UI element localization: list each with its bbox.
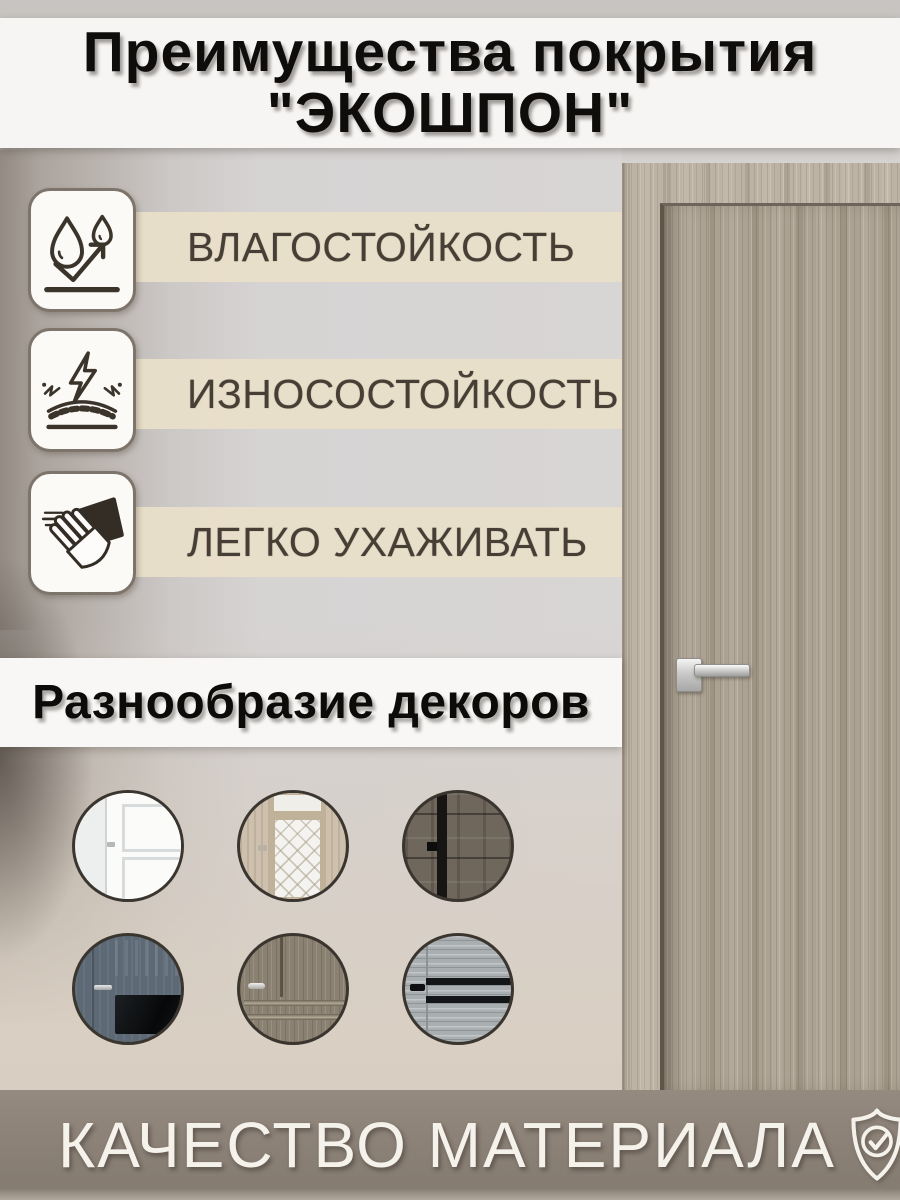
feature-band-care: ЛЕГКО УХАЖИВАТЬ (130, 507, 622, 577)
water-drops-icon (38, 198, 126, 302)
mini-door-handle-icon (427, 842, 437, 851)
decor-white-classic-door (72, 790, 184, 902)
feature-icon-tile (28, 328, 136, 452)
promo-image: Преимущества покрытия "ЭКОШПОН" ВЛАГОСТО… (0, 0, 900, 1200)
title-banner: Преимущества покрытия "ЭКОШПОН" (0, 18, 900, 148)
wipe-clean-icon (38, 481, 126, 585)
mini-door-handle-icon (248, 983, 265, 989)
floor-strip (0, 1188, 900, 1200)
impact-resistance-icon (38, 338, 126, 442)
feature-band-wear: ИЗНОСОСТОЙКОСТЬ (130, 359, 622, 429)
feature-label: ВЛАГОСТОЙКОСТЬ (187, 224, 575, 271)
door-handle-icon (694, 664, 750, 677)
feature-band-moisture: ВЛАГОСТОЙКОСТЬ (130, 212, 622, 282)
decor-dark-rustic-wood-door (402, 790, 514, 902)
feature-icon-tile (28, 471, 136, 595)
footer-band: КАЧЕСТВО МАТЕРИАЛА (0, 1090, 900, 1200)
mini-door-handle-icon (258, 845, 267, 851)
feature-label: ЛЕГКО УХАЖИВАТЬ (187, 519, 588, 566)
shield-check-icon (848, 1106, 900, 1184)
feature-icon-tile (28, 188, 136, 312)
footer-label: КАЧЕСТВО МАТЕРИАЛА (58, 1108, 836, 1182)
decor-blue-gray-dark-glass-door (72, 933, 184, 1045)
decors-banner: Разнообразие декоров (0, 658, 622, 747)
decor-classic-wood-panel-door (237, 933, 349, 1045)
mini-door-handle-icon (107, 842, 115, 847)
decor-glass-insert-door (237, 790, 349, 902)
mini-door-handle-icon (410, 984, 425, 991)
decors-title: Разнообразие декоров (32, 675, 590, 730)
door-photo (622, 163, 900, 1090)
title-line-2: "ЭКОШПОН" (267, 83, 633, 144)
door-panel (660, 203, 900, 1090)
ceiling-strip (0, 0, 900, 18)
feature-label: ИЗНОСОСТОЙКОСТЬ (187, 371, 619, 418)
decor-gray-wood-black-stripe-door (402, 933, 514, 1045)
title-line-1: Преимущества покрытия (83, 22, 818, 83)
mini-door-handle-icon (94, 985, 112, 990)
